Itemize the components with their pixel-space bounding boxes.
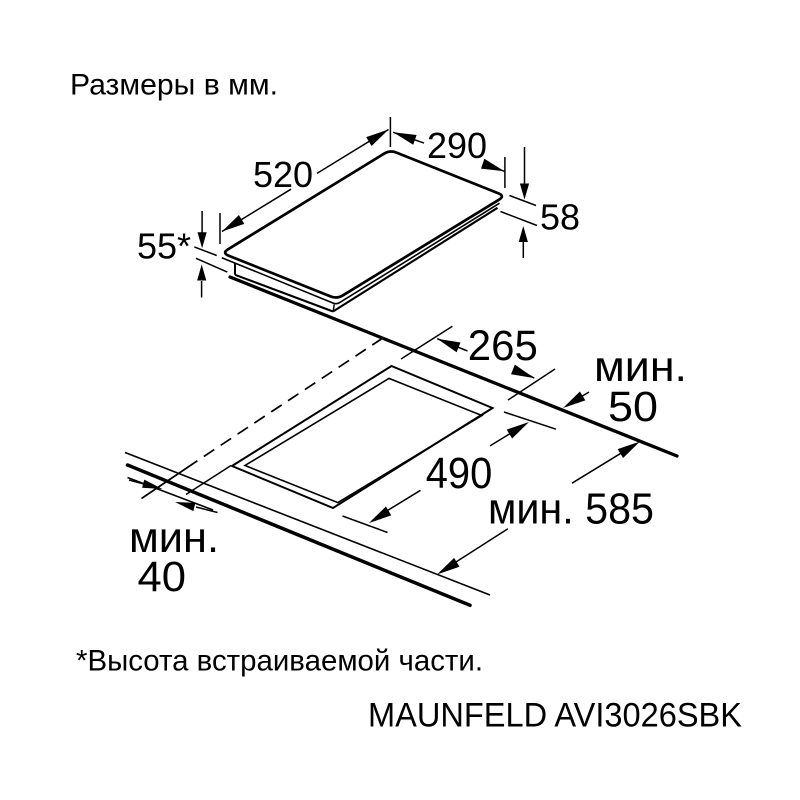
svg-text:58: 58 (540, 197, 580, 238)
svg-text:290: 290 (427, 125, 487, 166)
svg-text:мин. 585: мин. 585 (488, 485, 654, 534)
svg-text:*Высота встраиваемой части.: *Высота встраиваемой части. (76, 645, 483, 678)
svg-text:Размеры в мм.: Размеры в мм. (70, 69, 278, 102)
svg-text:55*: 55* (137, 225, 191, 266)
svg-text:520: 520 (253, 154, 313, 195)
svg-text:MAUNFELD AVI3026SBK: MAUNFELD AVI3026SBK (368, 697, 742, 735)
svg-text:490: 490 (426, 449, 493, 498)
svg-text:265: 265 (468, 322, 538, 370)
svg-text:40: 40 (138, 553, 187, 601)
svg-text:50: 50 (608, 383, 658, 431)
